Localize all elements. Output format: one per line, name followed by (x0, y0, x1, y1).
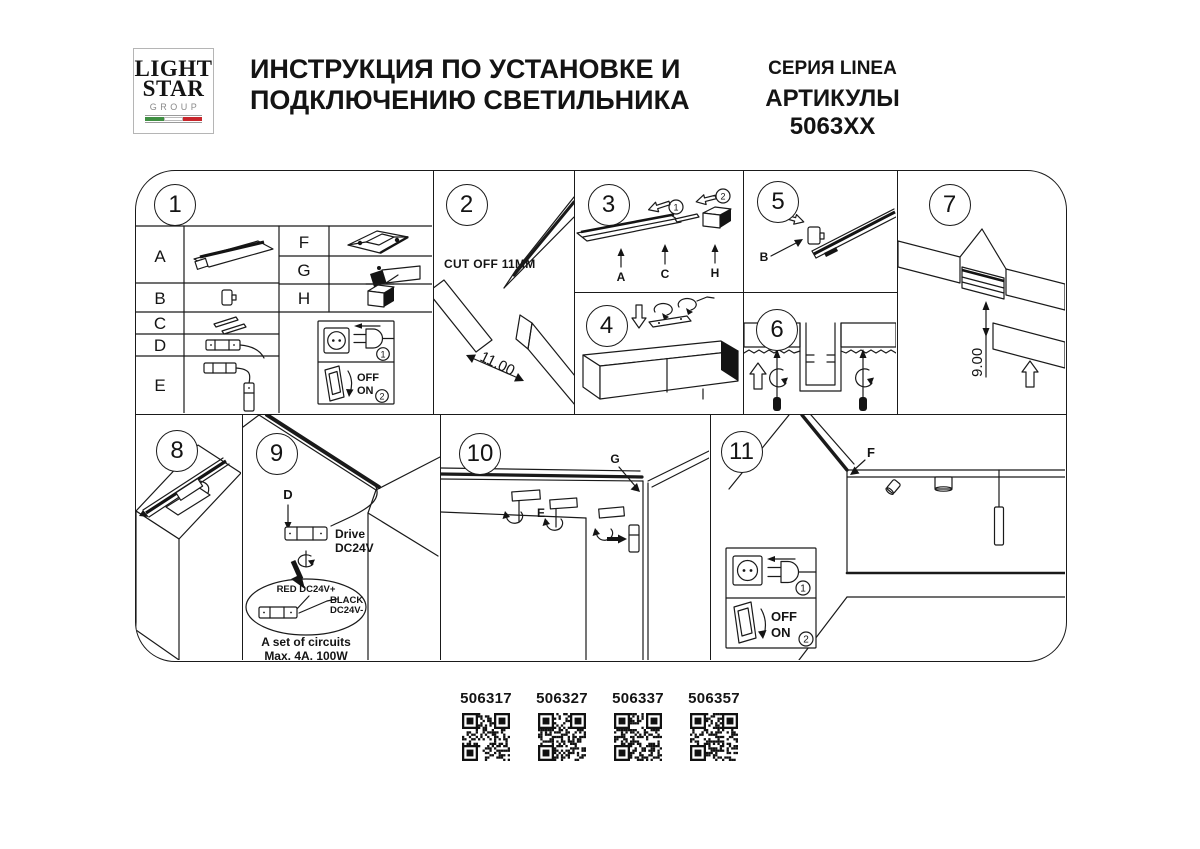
cut-face (516, 315, 532, 349)
step-number-3: 3 (588, 184, 630, 226)
finished-room-drawing: F (711, 415, 1065, 660)
articles: АРТИКУЛЫ 5063XX (725, 85, 940, 141)
qr-item-506357: 506357 (679, 690, 749, 761)
wall-hatch-left (434, 280, 492, 352)
wire-black-label-line2: DC24V- (330, 605, 363, 616)
label-g: G (610, 452, 619, 466)
step-number-7: 7 (929, 184, 971, 226)
part-letter-f: F (299, 233, 309, 252)
room-corner (441, 451, 709, 660)
title-line-1: ИНСТРУКЦИЯ ПО УСТАНОВКЕ И (250, 54, 690, 85)
logo-text-group: GROUP (150, 102, 201, 112)
series-name: СЕРИЯ LINEA (725, 58, 940, 80)
step3-arrow1-number: 1 (673, 202, 678, 212)
qr-code (614, 713, 662, 761)
dimension-9-label: 9.00 (969, 348, 986, 377)
screwdriver-right (856, 349, 874, 411)
panel-1-parts: 1 A B C D E F (136, 171, 434, 415)
qr-item-506317: 506317 (451, 690, 521, 761)
joined-profiles (583, 341, 738, 399)
panel-3-assemble: 3 1 2 (575, 171, 745, 293)
circuits-label-line2: Max. 4A, 100W (264, 649, 348, 660)
label-a: A (616, 270, 625, 284)
step-number-11: 11 (721, 431, 763, 473)
driver-1 (503, 490, 541, 523)
switch-on-label: ON (771, 625, 791, 640)
instruction-board: 1 A B C D E F (135, 170, 1067, 662)
dimension-11: 11.00 (466, 348, 524, 381)
italy-flag-icon (145, 115, 202, 123)
rotate-arrow-2 (678, 298, 696, 309)
drive-label-line1: Drive (335, 527, 365, 541)
ceiling-hatch-1 (898, 241, 960, 283)
switch-off-label: OFF (357, 372, 379, 384)
label-h: H (710, 266, 719, 280)
part-c-drawing (214, 317, 246, 334)
up-arrow (750, 363, 766, 389)
rotate-arrow-1 (654, 303, 672, 314)
driver-3 (593, 506, 625, 539)
panel-9-driver: 9 D (243, 415, 442, 660)
panel-10-corner: 10 (441, 415, 711, 660)
label-d: D (283, 487, 292, 502)
driver-box (285, 527, 327, 540)
label-arrows (617, 244, 718, 267)
dimension-9: 9.00 (969, 301, 990, 377)
qr-code (462, 713, 510, 761)
part-h-drawing (368, 285, 394, 307)
article-number: 506337 (603, 690, 673, 707)
spot-light (885, 479, 901, 496)
part-letter-c: C (154, 314, 166, 333)
pendant-light (994, 470, 1003, 545)
panel-2-cutoff: 2 CUT OFF 11MM (434, 171, 575, 415)
step-number-8: 8 (156, 430, 198, 472)
corner-h-drawing (703, 207, 731, 228)
circuits-label-line1: A set of circuits (261, 635, 351, 649)
switch-step-number: 2 (379, 391, 384, 401)
title-line-2: ПОДКЛЮЧЕНИЮ СВЕТИЛЬНИКА (250, 85, 690, 116)
cylinder-light (935, 477, 952, 491)
endcap-b (808, 227, 820, 244)
ceiling-hatch-2 (1006, 269, 1065, 310)
panel-8-installed: 8 (136, 415, 243, 660)
part-letter-h: H (298, 289, 310, 308)
switch-on-label: ON (357, 385, 374, 397)
panel-11-finished: 11 F (711, 415, 1067, 660)
step3-arrow2-number: 2 (720, 191, 725, 201)
supply-cable (331, 485, 377, 526)
step-number-1: 1 (154, 184, 196, 226)
plug-step-number: 1 (380, 349, 385, 359)
driver-2 (543, 498, 578, 530)
label-e: E (537, 506, 545, 520)
part-letter-d: D (154, 336, 166, 355)
article-number: 506317 (451, 690, 521, 707)
part-e-drawing (204, 363, 254, 411)
label-b: B (760, 250, 769, 264)
ceiling-hatch-right (841, 323, 896, 347)
strip-c-drawing (675, 214, 699, 222)
qr-code (538, 713, 586, 761)
power-box-large: 1 OFF ON 2 (726, 548, 816, 648)
part-b-drawing (222, 290, 236, 305)
step-number-9: 9 (256, 433, 298, 475)
step-number-10: 10 (459, 433, 501, 475)
connector-strip (649, 316, 691, 327)
switch-off-label: OFF (771, 609, 797, 624)
power-box-small: 1 OFF ON 2 (318, 321, 394, 404)
article-number: 506357 (679, 690, 749, 707)
part-d-drawing (206, 340, 264, 358)
qr-code (690, 713, 738, 761)
lower-slab-hatch (993, 323, 1065, 368)
lightstar-logo: LIGHT STAR GROUP (133, 48, 214, 134)
dimension-11-label: 11.00 (477, 348, 517, 379)
page-title: ИНСТРУКЦИЯ ПО УСТАНОВКЕ И ПОДКЛЮЧЕНИЮ СВ… (250, 54, 690, 116)
step-number-5: 5 (757, 181, 799, 223)
part-letter-a: A (154, 247, 166, 266)
logo-text-star: STAR (143, 79, 205, 99)
part-letter-b: B (154, 289, 165, 308)
qr-item-506337: 506337 (603, 690, 673, 761)
screwdriver-left (770, 349, 788, 411)
instruction-sheet: LIGHT STAR GROUP ИНСТРУКЦИЯ ПО УСТАНОВКЕ… (0, 0, 1200, 849)
panel-4-join: 4 (575, 293, 745, 415)
plug-step-number: 1 (800, 583, 806, 594)
step-number-2: 2 (446, 184, 488, 226)
socket-icon (733, 556, 762, 585)
recessed-profile (962, 267, 1004, 299)
up-arrow (1022, 361, 1038, 387)
panel-7-recessed: 7 (898, 171, 1067, 415)
socket-icon (324, 328, 349, 353)
qr-item-506327: 506327 (527, 690, 597, 761)
label-f: F (867, 445, 875, 460)
profile-drawing (504, 197, 574, 288)
part-letter-e: E (154, 376, 165, 395)
channel-profile (800, 323, 841, 391)
driver-vertical (629, 525, 639, 552)
switch-step-number: 2 (803, 634, 809, 645)
panel-5-endcap: 5 1 B (744, 171, 898, 293)
wall-hatch-right (528, 323, 574, 405)
drive-label-line2: DC24V (335, 541, 374, 555)
step-number-4: 4 (586, 305, 628, 347)
part-a-drawing (194, 241, 273, 269)
part-letter-g: G (297, 261, 310, 280)
panel-6-fix: 6 (744, 293, 898, 415)
label-c: C (660, 267, 669, 281)
series-block: СЕРИЯ LINEA АРТИКУЛЫ 5063XX (725, 58, 940, 141)
part-f-drawing (348, 231, 408, 253)
wire-red-label: RED DC24V+ (276, 584, 335, 595)
driver-in-ellipse (259, 607, 297, 618)
step-number-6: 6 (756, 309, 798, 351)
recessed-drawing: 9.00 (898, 171, 1065, 413)
article-number: 506327 (527, 690, 597, 707)
